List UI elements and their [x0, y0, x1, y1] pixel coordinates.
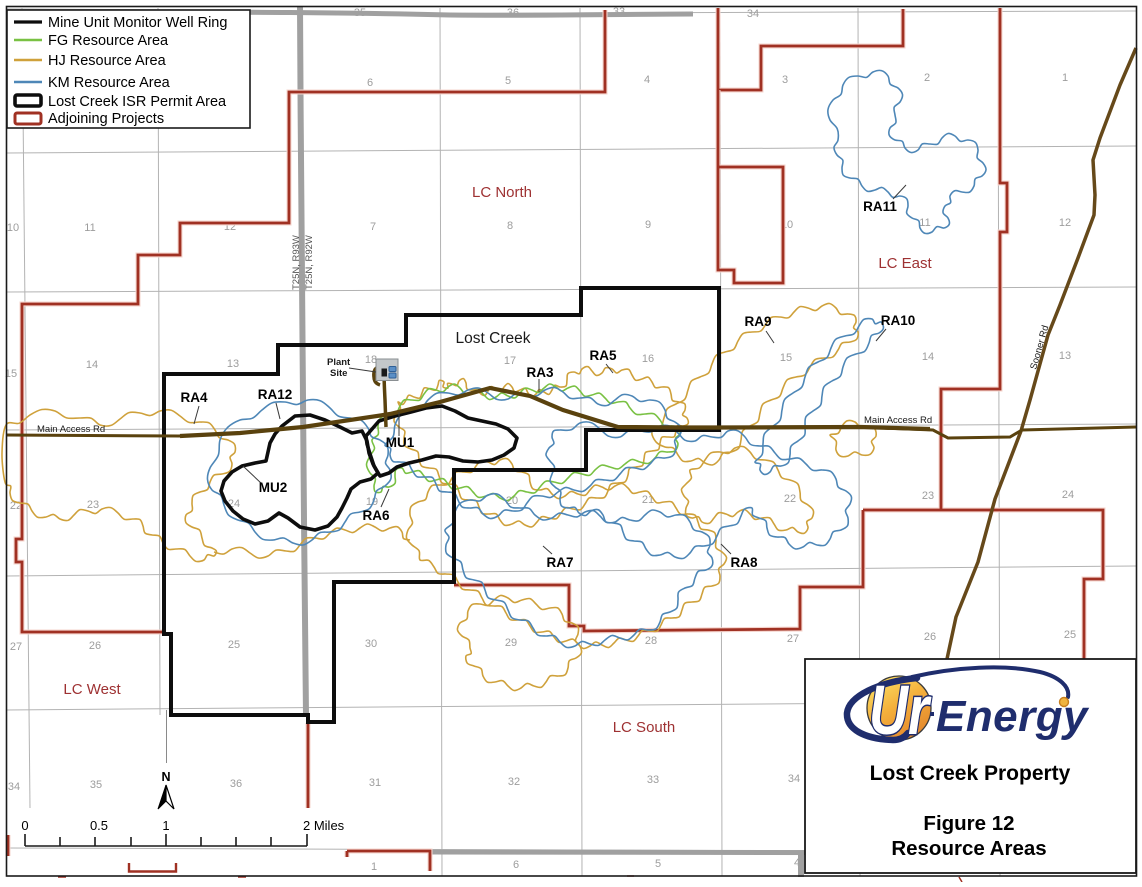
svg-text:2: 2 — [924, 72, 930, 84]
svg-text:Energy: Energy — [936, 692, 1090, 741]
svg-text:RA5: RA5 — [589, 348, 616, 363]
svg-text:Main Access Rd: Main Access Rd — [37, 424, 105, 435]
svg-text:Main Access Rd: Main Access Rd — [864, 415, 932, 426]
svg-text:HJ Resource Area: HJ Resource Area — [48, 53, 167, 69]
svg-text:11: 11 — [919, 217, 930, 229]
svg-text:RA7: RA7 — [546, 555, 573, 570]
svg-text:10: 10 — [7, 222, 19, 234]
svg-text:23: 23 — [87, 499, 99, 511]
svg-text:6: 6 — [513, 859, 519, 871]
svg-text:16: 16 — [642, 353, 654, 365]
svg-text:31: 31 — [369, 777, 381, 789]
svg-text:Figure 12: Figure 12 — [923, 812, 1014, 835]
svg-text:Ur: Ur — [869, 671, 932, 749]
svg-text:26: 26 — [924, 631, 936, 643]
svg-text:MU2: MU2 — [259, 480, 288, 495]
svg-text:RA3: RA3 — [526, 365, 553, 380]
svg-text:26: 26 — [89, 640, 101, 652]
svg-text:0: 0 — [21, 818, 28, 833]
svg-text:MU1: MU1 — [386, 435, 415, 450]
svg-text:Mine Unit Monitor Well Ring: Mine Unit Monitor Well Ring — [48, 15, 227, 31]
svg-text:33: 33 — [647, 774, 659, 786]
svg-text:24: 24 — [1062, 489, 1074, 501]
svg-text:T25N, R93W: T25N, R93W — [291, 235, 302, 290]
svg-text:12: 12 — [1059, 217, 1071, 229]
svg-text:LC West: LC West — [63, 681, 121, 698]
svg-text:LC East: LC East — [878, 255, 932, 272]
svg-text:15: 15 — [780, 352, 792, 364]
svg-text:RA4: RA4 — [180, 390, 207, 405]
svg-text:Site: Site — [330, 368, 347, 379]
svg-text:T25N, R92W: T25N, R92W — [304, 235, 315, 290]
svg-text:13: 13 — [1059, 350, 1071, 362]
svg-text:Plant: Plant — [327, 357, 351, 368]
svg-text:5: 5 — [505, 75, 511, 87]
svg-text:0.5: 0.5 — [90, 818, 108, 833]
svg-text:RA8: RA8 — [730, 555, 757, 570]
svg-text:Resource Areas: Resource Areas — [891, 837, 1046, 860]
svg-text:35: 35 — [90, 779, 102, 791]
svg-text:LC North: LC North — [472, 184, 532, 201]
svg-text:36: 36 — [230, 778, 242, 790]
svg-text:21: 21 — [642, 494, 654, 506]
svg-text:RA12: RA12 — [258, 387, 293, 402]
svg-text:14: 14 — [922, 351, 934, 363]
svg-text:3: 3 — [782, 74, 788, 86]
svg-text:6: 6 — [367, 77, 373, 89]
svg-text:N: N — [161, 770, 170, 784]
svg-text:25: 25 — [1064, 629, 1076, 641]
svg-text:1: 1 — [1062, 72, 1068, 84]
svg-text:FG Resource Area: FG Resource Area — [48, 33, 169, 49]
svg-text:34: 34 — [747, 8, 759, 20]
svg-text:22: 22 — [784, 493, 796, 505]
svg-text:2 Miles: 2 Miles — [303, 818, 345, 833]
svg-text:18: 18 — [365, 354, 377, 366]
svg-text:28: 28 — [645, 635, 657, 647]
svg-text:4: 4 — [644, 74, 650, 86]
svg-text:KM Resource Area: KM Resource Area — [48, 75, 171, 91]
svg-text:25: 25 — [228, 639, 240, 651]
svg-text:Lost Creek: Lost Creek — [456, 330, 531, 347]
svg-text:Lost Creek ISR Permit Area: Lost Creek ISR Permit Area — [48, 94, 227, 110]
svg-text:RA9: RA9 — [744, 314, 771, 329]
svg-text:LC South: LC South — [613, 719, 676, 736]
svg-text:1: 1 — [162, 818, 169, 833]
svg-text:34: 34 — [788, 773, 800, 785]
svg-text:32: 32 — [508, 776, 520, 788]
svg-text:Adjoining Projects: Adjoining Projects — [48, 111, 164, 127]
svg-text:14: 14 — [86, 359, 98, 371]
svg-text:29: 29 — [505, 637, 517, 649]
svg-text:27: 27 — [10, 641, 22, 653]
svg-text:11: 11 — [84, 222, 95, 234]
svg-text:13: 13 — [227, 358, 239, 370]
svg-text:Lost Creek Property: Lost Creek Property — [870, 762, 1071, 785]
svg-text:30: 30 — [365, 638, 377, 650]
svg-text:RA10: RA10 — [881, 313, 916, 328]
svg-text:8: 8 — [507, 220, 513, 232]
svg-text:RA11: RA11 — [863, 199, 897, 214]
svg-text:5: 5 — [655, 858, 661, 870]
svg-text:7: 7 — [370, 221, 376, 233]
svg-text:9: 9 — [645, 219, 651, 231]
svg-text:34: 34 — [8, 781, 20, 793]
svg-text:27: 27 — [787, 633, 799, 645]
svg-text:1: 1 — [371, 861, 377, 873]
svg-text:23: 23 — [922, 490, 934, 502]
svg-text:RA6: RA6 — [362, 508, 389, 523]
svg-text:17: 17 — [504, 355, 516, 367]
